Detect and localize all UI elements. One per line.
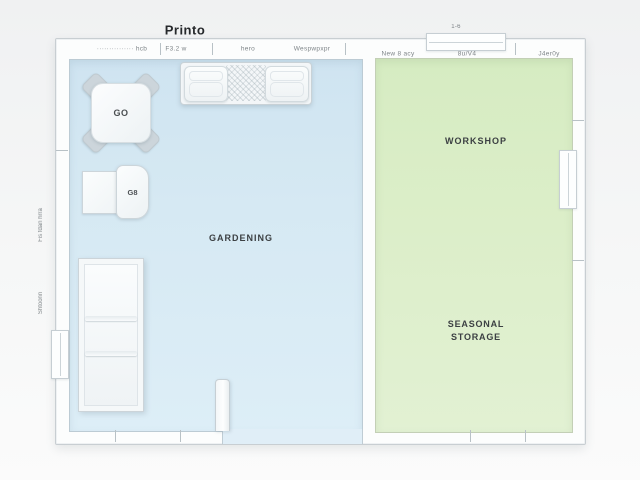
wall-tick	[180, 430, 181, 442]
wall-tick	[525, 430, 526, 442]
wall-tick	[470, 430, 471, 442]
desk-chair-label: G8	[127, 188, 137, 197]
desk-chair: G8	[116, 165, 149, 219]
wall-tick	[572, 260, 584, 261]
wall-tick	[572, 120, 584, 121]
square-table-group: GO	[88, 78, 154, 148]
dimension-label-vertical: Shtoonn	[38, 292, 44, 314]
wall-tick	[160, 43, 161, 55]
dimension-label: New 8 acy	[381, 51, 414, 58]
cabinet-drawer	[189, 71, 223, 81]
storage-shelf	[78, 258, 144, 412]
dimension-label: J4er0y	[538, 51, 559, 58]
workbench-cabinet-left	[184, 66, 228, 102]
window-left-wall-icon	[51, 330, 69, 379]
wall-tick	[212, 43, 213, 55]
dimension-label: Wespwpxpr	[294, 46, 331, 53]
shelf-line	[85, 316, 137, 321]
workbench-hatch-pattern	[226, 65, 266, 101]
dimension-label: 8u/V4	[458, 51, 477, 58]
dimension-label: hero	[241, 46, 255, 53]
shelf-inner-panel	[84, 264, 138, 406]
window-pane-line	[429, 42, 503, 43]
room-label-workshop: WORKSHOP	[445, 136, 507, 146]
door-jamb-wall	[215, 379, 230, 431]
wall-tick	[345, 43, 346, 55]
plan-title: Printo	[165, 23, 206, 38]
window-dimension-label: 1-6	[451, 24, 461, 30]
dimension-label: ··············· hcb	[97, 46, 147, 53]
bottom-door-opening	[222, 429, 363, 444]
workshop-room-floor	[375, 58, 573, 433]
cabinet-door	[270, 82, 304, 97]
window-pane-line	[568, 153, 569, 206]
window-pane-line	[60, 333, 61, 376]
cabinet-door	[189, 82, 223, 97]
window-right-wall-icon	[559, 150, 577, 209]
shelf-line	[85, 351, 137, 356]
dimension-label: F3.2 w	[165, 46, 186, 53]
floor-plan: Printo	[0, 0, 640, 480]
workbench-cabinet-right	[265, 66, 309, 102]
workbench	[180, 62, 312, 105]
square-table: GO	[91, 83, 151, 143]
wall-tick	[115, 430, 116, 442]
seasonal-storage-line1: SEASONAL	[448, 318, 504, 331]
room-label-gardening: GARDENING	[209, 233, 273, 243]
dimension-label-vertical: Fis fdan hrra	[38, 208, 44, 242]
desk-group: G8	[82, 165, 148, 218]
table-label: GO	[113, 108, 128, 118]
seasonal-storage-line2: STORAGE	[448, 331, 504, 344]
cabinet-drawer	[270, 71, 304, 81]
window-top-wall-icon	[426, 33, 506, 51]
wall-tick	[56, 150, 68, 151]
wall-tick	[515, 43, 516, 55]
room-label-seasonal-storage: SEASONAL STORAGE	[448, 318, 504, 344]
